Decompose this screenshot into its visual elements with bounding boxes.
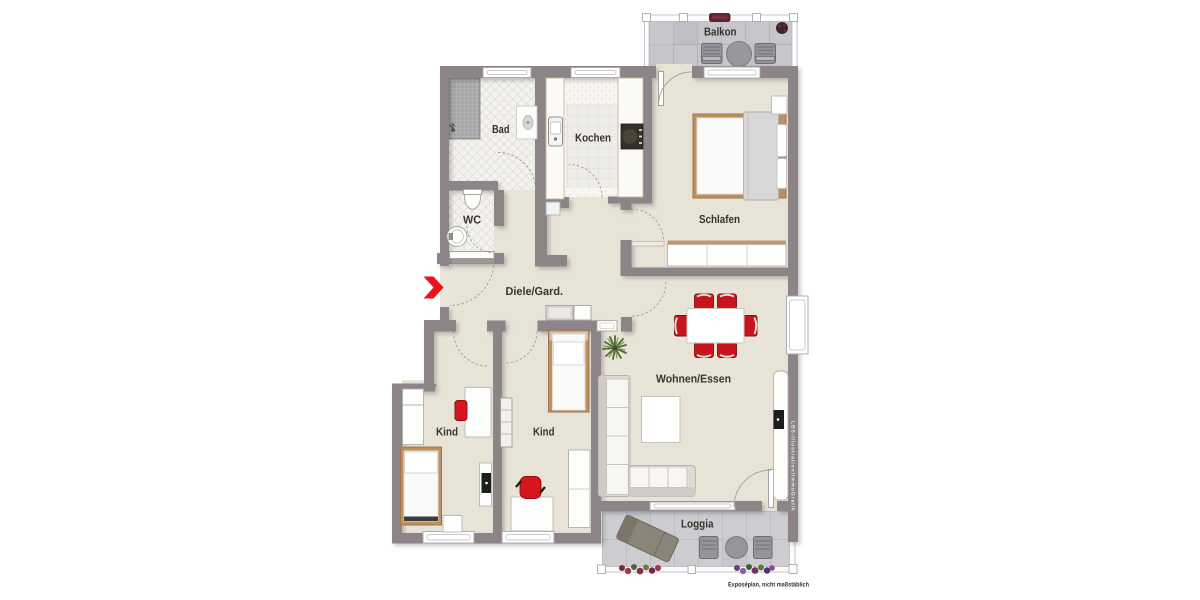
svg-text:Kochen: Kochen xyxy=(575,133,611,145)
svg-text:Wohnen/Essen: Wohnen/Essen xyxy=(656,374,731,386)
svg-text:Bad: Bad xyxy=(492,124,510,136)
svg-text:WC: WC xyxy=(463,215,481,227)
svg-text:Kind: Kind xyxy=(436,427,458,439)
svg-text:Loggia: Loggia xyxy=(681,519,714,531)
svg-text:Balkon: Balkon xyxy=(704,27,737,39)
svg-text:Kind: Kind xyxy=(533,427,555,439)
svg-text:LBS-Illustration/ImmoGrafik: LBS-Illustration/ImmoGrafik xyxy=(790,421,796,512)
svg-text:Diele/Gard.: Diele/Gard. xyxy=(506,286,564,298)
svg-text:Schlafen: Schlafen xyxy=(699,214,740,226)
svg-text:Exposéplan, nicht maßstäblich: Exposéplan, nicht maßstäblich xyxy=(728,582,809,589)
